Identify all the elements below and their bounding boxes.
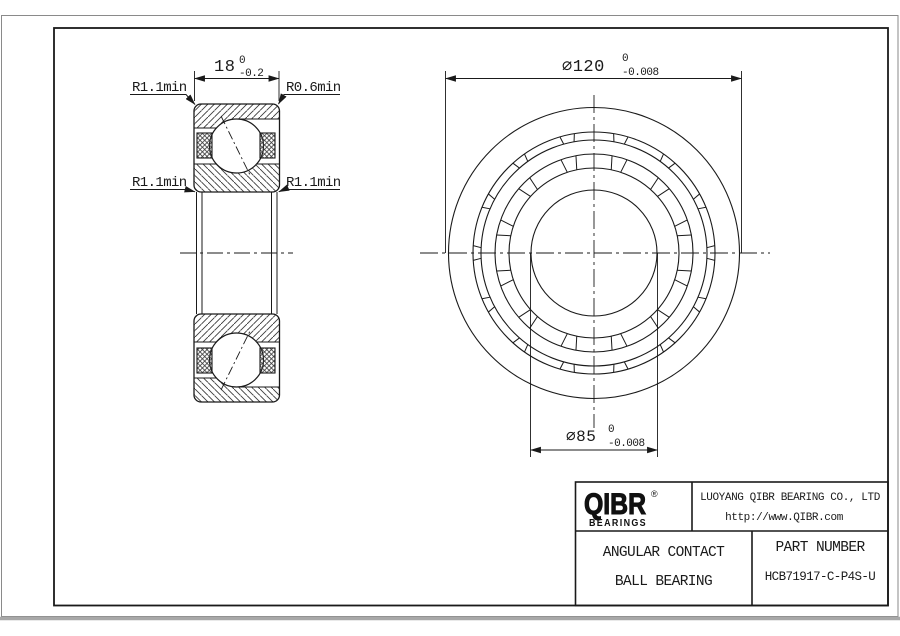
outer-dia-value: ∅120 bbox=[562, 58, 605, 77]
width-dim-value: 18 bbox=[214, 58, 235, 77]
qibr-logo: QIBR ® BEARINGS bbox=[584, 488, 658, 529]
front-view: ∅120 0 -0.008 ∅85 0 -0.008 bbox=[420, 53, 770, 457]
drawing-canvas: 18 0 -0.2 R1.1min R0.6min R1.1min R1.1mi… bbox=[0, 0, 900, 636]
page-border bbox=[2, 16, 899, 617]
radius-label-top-right: R0.6min bbox=[286, 80, 341, 96]
section-view: 18 0 -0.2 R1.1min R0.6min R1.1min R1.1mi… bbox=[130, 55, 341, 402]
width-dimension: 18 0 -0.2 bbox=[195, 55, 280, 101]
radius-label-bottom-right: R1.1min bbox=[286, 175, 341, 191]
part-number-value: HCB71917-C-P4S-U bbox=[765, 570, 876, 584]
radius-label-bottom-left: R1.1min bbox=[132, 175, 187, 191]
title-block: QIBR ® BEARINGS LUOYANG QIBR BEARING CO.… bbox=[576, 482, 889, 606]
width-dim-tol-upper: 0 bbox=[239, 55, 245, 67]
bearing-section-lower bbox=[194, 314, 280, 402]
company-name: LUOYANG QIBR BEARING CO., LTD bbox=[700, 492, 881, 504]
outer-dia-tol-lower: -0.008 bbox=[622, 67, 659, 79]
drawing-page: 18 0 -0.2 R1.1min R0.6min R1.1min R1.1mi… bbox=[0, 0, 900, 636]
width-dim-tol-lower: -0.2 bbox=[239, 68, 263, 80]
bore-dia-tol-upper: 0 bbox=[608, 424, 614, 436]
logo-wordmark: QIBR bbox=[584, 488, 646, 521]
registered-mark-icon: ® bbox=[651, 489, 658, 499]
company-website: http://www.QIBR.com bbox=[725, 512, 844, 524]
outer-dia-tol-upper: 0 bbox=[622, 53, 628, 65]
part-number-label: PART NUMBER bbox=[775, 540, 865, 556]
bore-dia-tol-lower: -0.008 bbox=[608, 438, 645, 450]
radius-label-top-left: R1.1min bbox=[132, 80, 187, 96]
product-name-line2: BALL BEARING bbox=[615, 574, 712, 590]
bearing-section-upper bbox=[194, 104, 280, 192]
product-name-line1: ANGULAR CONTACT bbox=[603, 545, 725, 561]
logo-subtitle: BEARINGS bbox=[589, 518, 647, 529]
bore-dia-value: ∅85 bbox=[566, 428, 596, 446]
outer-diameter-dimension: ∅120 0 -0.008 bbox=[446, 53, 742, 253]
